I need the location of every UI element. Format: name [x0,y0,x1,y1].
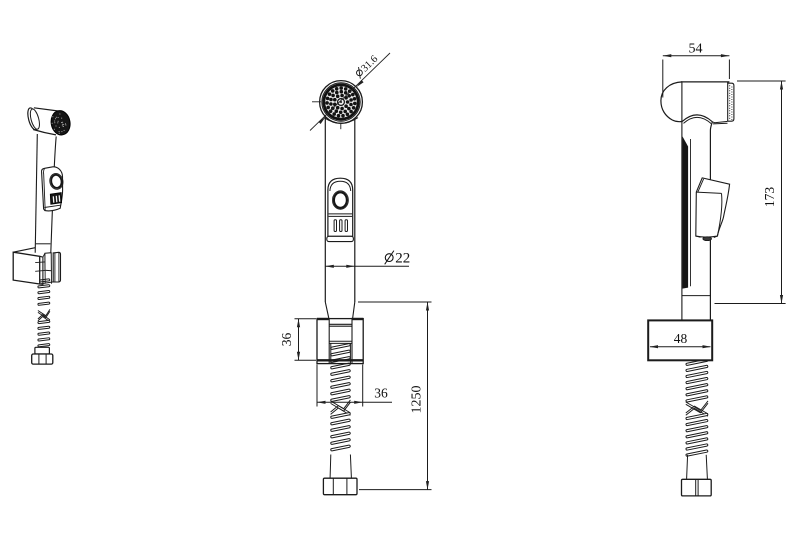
svg-text:48: 48 [674,331,688,346]
svg-text:22: 22 [395,251,410,267]
svg-text:54: 54 [689,42,703,57]
svg-text:36: 36 [374,386,388,401]
svg-text:31.6: 31.6 [359,54,380,75]
svg-text:36: 36 [279,333,294,347]
svg-text:173: 173 [762,187,777,208]
svg-text:1250: 1250 [410,386,425,414]
